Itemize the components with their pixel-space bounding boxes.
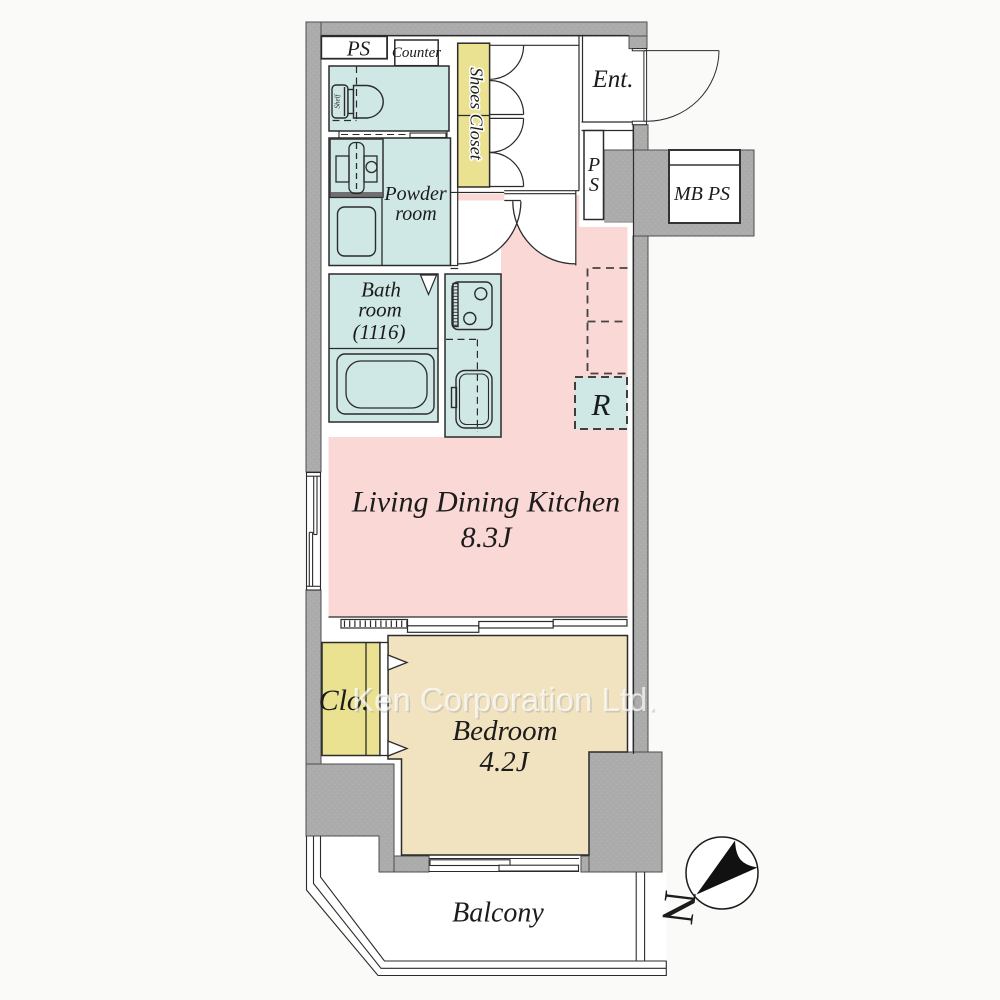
svg-text:Powder: Powder — [383, 183, 446, 205]
svg-text:PS: PS — [346, 37, 371, 61]
svg-text:(1116): (1116) — [353, 320, 406, 344]
svg-text:Living Dining Kitchen: Living Dining Kitchen — [351, 486, 620, 519]
svg-text:room: room — [358, 298, 402, 322]
svg-text:Shoes Closet: Shoes Closet — [467, 67, 487, 160]
svg-text:Ken Corporation Ltd.: Ken Corporation Ltd. — [352, 681, 657, 718]
svg-text:R: R — [591, 387, 611, 422]
svg-text:N: N — [652, 888, 707, 927]
svg-text:8.3J: 8.3J — [461, 521, 514, 554]
svg-text:Ent.: Ent. — [592, 66, 634, 93]
svg-text:P: P — [587, 154, 600, 176]
svg-text:room: room — [395, 203, 436, 225]
svg-text:4.2J: 4.2J — [479, 746, 529, 778]
svg-text:Shelf: Shelf — [334, 93, 342, 108]
svg-text:Bedroom: Bedroom — [452, 715, 557, 747]
svg-text:Counter: Counter — [392, 45, 441, 61]
svg-text:S: S — [589, 174, 599, 196]
svg-text:MB PS: MB PS — [673, 183, 730, 205]
svg-text:Balcony: Balcony — [452, 898, 544, 929]
